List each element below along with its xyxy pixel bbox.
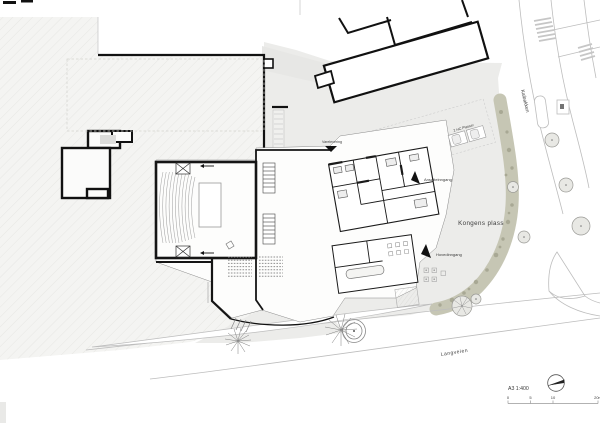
street-planter xyxy=(534,95,549,128)
stair-box-top xyxy=(176,163,190,174)
kaibakken-road-edge-3 xyxy=(584,0,596,78)
kaibakken-road-edge-2 xyxy=(551,0,589,188)
site-plan-drawing: 2 HC Plasser xyxy=(0,0,600,423)
existing-hall-notch xyxy=(264,59,273,68)
kaibakken-label: Kaibakken xyxy=(519,89,530,113)
existing-stair-strip xyxy=(273,110,284,150)
east-stair-1 xyxy=(263,163,275,193)
east-stair-2 xyxy=(263,214,275,244)
bus-shelter-mark xyxy=(560,104,564,109)
top-edge-building-mark-1 xyxy=(3,1,16,4)
kongens-plass-label: Kongens plass xyxy=(458,220,504,227)
chair-storage-block-1 xyxy=(228,257,252,276)
junction-curve-2 xyxy=(585,296,600,303)
traffic-island xyxy=(549,252,585,299)
small-building-gray-room xyxy=(100,135,116,144)
scale-tick-20m: 20m xyxy=(594,395,600,400)
stage-platform xyxy=(199,183,221,227)
chair-storage-block-2 xyxy=(259,257,283,276)
scale-tick-10: 10 xyxy=(551,395,556,400)
top-edge-building-mark-2 xyxy=(21,0,33,3)
hovedinngang-label: Hovedinngang xyxy=(436,252,462,257)
floor-plan-canvas: 2 HC Plasser xyxy=(0,0,600,423)
sheet-scale-text: A3 1:400 xyxy=(508,386,529,392)
scale-tick-0: 0 xyxy=(507,395,510,400)
north-arrow-icon xyxy=(548,375,565,392)
terrace-hatch-platform xyxy=(395,287,419,308)
auditorium xyxy=(156,162,256,258)
bottom-left-gray-strip xyxy=(0,402,6,423)
scale-bar: 0 5 10 20m xyxy=(507,395,600,404)
scale-tick-5: 5 xyxy=(529,395,532,400)
ansatteinngang-label: Ansatteinngang xyxy=(424,177,452,182)
title-block: A3 1:400 0 5 10 20m xyxy=(507,375,600,404)
zebra-crossing-2 xyxy=(578,44,595,60)
langveien-label: Langveien xyxy=(440,348,468,358)
cross-street-edge-1 xyxy=(553,20,600,30)
stair-box-bottom xyxy=(176,246,190,257)
zebra-crossing-1 xyxy=(534,18,556,41)
varelevering-label: Varelevering xyxy=(322,140,342,144)
